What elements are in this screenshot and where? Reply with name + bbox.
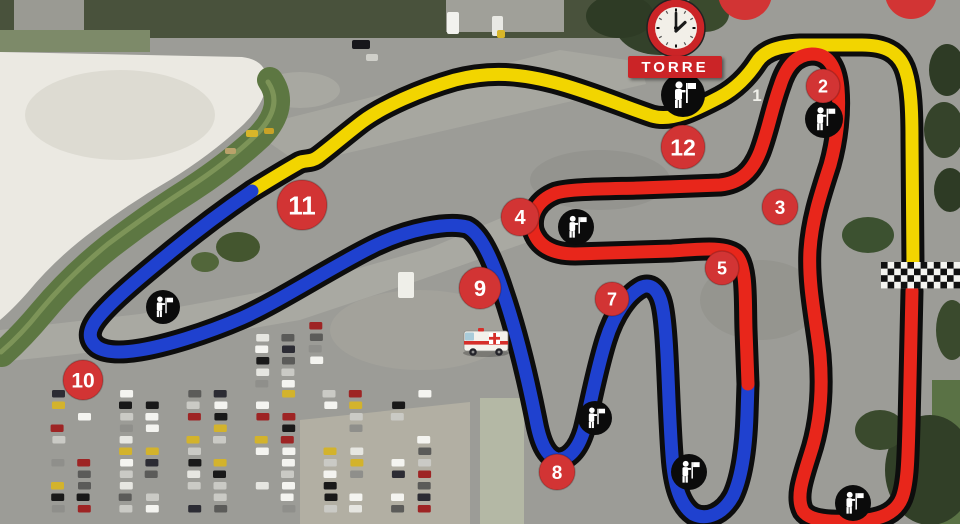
corner-marker-12: 12 (661, 125, 705, 169)
marshal-torso (817, 114, 823, 124)
marshal-circle (578, 401, 612, 435)
parked-car (187, 402, 200, 410)
marshal-head (847, 492, 853, 498)
finish-line-cell (954, 282, 960, 289)
corner-marker-label: 12 (670, 134, 696, 160)
marshal-arm (681, 90, 686, 92)
parked-car (282, 505, 295, 513)
marshal-torso (157, 302, 162, 311)
terrain-shape (842, 217, 894, 253)
parked-car (78, 482, 91, 490)
finish-line-cell (901, 269, 908, 276)
parked-car (324, 402, 337, 410)
ambulance-stripe (464, 341, 508, 345)
parked-car (77, 459, 90, 467)
marshal-flag-icon (146, 290, 180, 324)
flag-pole (165, 298, 166, 313)
parked-car (282, 346, 295, 354)
marshal-leg (820, 123, 822, 130)
parked-car (78, 505, 91, 513)
marshal-flag-icon (661, 73, 705, 117)
marshal-torso (846, 498, 852, 507)
flag (599, 409, 605, 414)
parked-car (214, 494, 227, 502)
vehicle (398, 272, 414, 298)
parked-car (418, 482, 431, 490)
corner-marker-label: 10 (71, 370, 94, 393)
finish-line-cell (888, 282, 895, 289)
parked-car (324, 505, 337, 513)
vehicle (497, 30, 505, 38)
parked-car (51, 459, 64, 467)
parked-car (349, 505, 362, 513)
parked-car (324, 482, 337, 490)
clock-center (674, 26, 678, 30)
marshal-leg (160, 311, 162, 317)
corner-marker-5: 5 (705, 251, 739, 285)
parked-car (418, 494, 431, 502)
marshal-circle (661, 73, 705, 117)
parked-car (120, 436, 133, 444)
parked-car (281, 471, 294, 479)
karting-circuit-map: 12345789101112 TORRE (0, 0, 960, 524)
parked-car (120, 482, 133, 490)
parked-car (120, 425, 133, 433)
terrain-shape (216, 232, 260, 262)
parked-car (256, 334, 269, 342)
parked-car (349, 390, 362, 398)
vehicle (246, 130, 258, 137)
parked-car (187, 471, 200, 479)
corner-marker-label: 4 (514, 207, 526, 229)
parked-car (256, 448, 269, 456)
parked-car (214, 505, 227, 513)
ambulance-hub (472, 351, 475, 354)
parked-car (145, 413, 158, 421)
parked-car (282, 425, 295, 433)
flag (857, 493, 864, 498)
marshal-circle (558, 209, 594, 245)
parked-car (146, 402, 159, 410)
parked-car (256, 357, 269, 365)
parked-car (255, 380, 268, 388)
parked-car (324, 471, 337, 479)
ambulance-windshield (465, 333, 474, 341)
parked-car (146, 505, 159, 513)
parked-car (214, 413, 227, 421)
parked-car (255, 346, 268, 354)
terrain-shape (25, 70, 215, 160)
marshal-circle (835, 485, 871, 521)
corner-marker-label: 8 (552, 463, 563, 484)
parked-car (78, 471, 91, 479)
flag (828, 109, 835, 114)
ambulance-icon (463, 328, 509, 357)
marshal-flag-icon (805, 100, 843, 138)
marshal-leg (679, 100, 682, 108)
parked-car (418, 459, 431, 467)
parked-car (188, 390, 201, 398)
vehicle (447, 12, 459, 34)
flag-pole (691, 462, 692, 478)
parked-car (392, 471, 405, 479)
parked-car (213, 471, 226, 479)
marshal-head (817, 107, 823, 113)
ambulance-cross (489, 337, 500, 340)
corner-marker-9: 9 (459, 267, 501, 309)
parked-car (350, 448, 363, 456)
parked-car (120, 471, 133, 479)
parked-car (350, 413, 363, 421)
marshal-arm (593, 414, 596, 416)
marshal-flag-icon (835, 485, 871, 521)
finish-line-cell (940, 282, 947, 289)
corner-marker-label: 7 (607, 289, 617, 309)
parked-car (187, 436, 200, 444)
finish-line-cell (934, 275, 941, 282)
flag (693, 462, 700, 467)
finish-line-cell (940, 269, 947, 276)
marshal-flag-icon (671, 454, 707, 490)
parked-car (51, 425, 64, 433)
finish-line-cell (907, 262, 914, 269)
parked-car (309, 322, 322, 330)
marshal-torso (589, 413, 594, 422)
tower-sign-label: TORRE (641, 59, 708, 76)
marshal-head (570, 216, 576, 222)
parked-car (119, 494, 132, 502)
corner-marker-10: 10 (63, 360, 103, 400)
parked-car (77, 494, 90, 502)
satellite-map-canvas: 12345789101112 (0, 0, 960, 524)
finish-line-cell (894, 262, 901, 269)
parked-car (214, 459, 227, 467)
flag (580, 217, 587, 222)
finish-line-cell (921, 262, 928, 269)
marshal-circle (805, 100, 843, 138)
marshal-leg (675, 100, 678, 108)
parked-car (120, 390, 133, 398)
parked-car (418, 505, 431, 513)
corner-marker-3: 3 (762, 189, 798, 225)
tower-sign: TORRE (628, 56, 722, 78)
marshal-arm (822, 115, 826, 117)
marshal-head (589, 407, 595, 413)
parked-car (188, 505, 201, 513)
terrain-shape (480, 398, 524, 524)
flag-pole (686, 83, 688, 103)
marshal-flag-icon (578, 401, 612, 435)
finish-line (881, 262, 960, 288)
parked-car (188, 459, 201, 467)
flag-pole (597, 409, 598, 424)
parked-car (310, 334, 323, 342)
finish-line-cell (907, 275, 914, 282)
parked-car (392, 459, 405, 467)
parked-car (119, 402, 132, 410)
clock-tower-icon (647, 0, 705, 57)
marshal-leg (592, 422, 594, 428)
marshal-leg (850, 507, 852, 514)
marshal-leg (846, 507, 848, 514)
parked-car (282, 413, 295, 421)
parked-car (214, 402, 227, 410)
corner-marker-label: 5 (717, 258, 727, 278)
parked-car (418, 448, 431, 456)
finish-line-cell (914, 269, 921, 276)
parked-car (256, 402, 269, 410)
parked-car (214, 425, 227, 433)
parked-car (350, 471, 363, 479)
finish-line-cell (954, 269, 960, 276)
finish-line-cell (881, 275, 888, 282)
flag-pole (578, 217, 579, 233)
marshal-circle (671, 454, 707, 490)
parked-car (324, 448, 337, 456)
parked-car (256, 413, 269, 421)
parked-car (282, 482, 295, 490)
parked-car (119, 448, 132, 456)
parked-car (309, 345, 322, 353)
parked-car (146, 425, 159, 433)
vehicle (352, 40, 370, 49)
parked-car (188, 448, 201, 456)
parked-car (146, 448, 159, 456)
parked-car (214, 482, 227, 490)
flag (688, 83, 696, 89)
parked-car (120, 413, 133, 421)
parked-car (120, 459, 133, 467)
parked-car (146, 494, 159, 502)
corner-marker-7: 7 (595, 282, 629, 316)
parked-car (188, 413, 201, 421)
vehicle (366, 54, 378, 61)
parked-car (310, 357, 323, 365)
corner-marker-2: 2 (806, 69, 840, 103)
marshal-head (683, 461, 689, 467)
terrain-shape (446, 0, 564, 32)
marshal-leg (682, 476, 684, 483)
parked-car (51, 482, 64, 490)
parked-car (325, 494, 338, 502)
parked-car (145, 459, 158, 467)
flag-pole (827, 109, 829, 126)
parked-car (52, 402, 65, 410)
marshal-torso (569, 222, 575, 231)
road-marking: 1 (752, 86, 761, 105)
parked-car (282, 380, 295, 388)
parked-car (282, 448, 295, 456)
marshal-arm (687, 468, 691, 470)
parked-car (214, 390, 227, 398)
marshal-arm (851, 499, 855, 501)
finish-line-cell (947, 262, 954, 269)
marshal-arm (574, 223, 578, 225)
parked-car (350, 459, 363, 467)
parked-car (52, 505, 65, 513)
parked-car (349, 494, 362, 502)
marshal-leg (157, 311, 159, 317)
finish-line-cell (888, 269, 895, 276)
marshal-arm (161, 303, 164, 305)
marshal-leg (573, 231, 575, 238)
finish-line-cell (881, 262, 888, 269)
parked-car (282, 459, 295, 467)
terrain-shape (191, 252, 219, 272)
marshal-flag-icon (558, 209, 594, 245)
parked-car (418, 390, 431, 398)
parked-car (350, 425, 363, 433)
parked-car (391, 505, 404, 513)
finish-line-cell (927, 269, 934, 276)
parked-car (255, 436, 268, 444)
parked-car (323, 390, 336, 398)
corner-marker-label: 3 (775, 198, 786, 219)
parked-car (145, 471, 158, 479)
parked-car (349, 402, 362, 410)
marshal-leg (589, 422, 591, 428)
parked-car (324, 459, 337, 467)
parked-car (51, 494, 64, 502)
finish-line-cell (921, 275, 928, 282)
marshal-torso (675, 89, 682, 100)
parked-car (281, 334, 294, 342)
flag-pole (855, 493, 856, 509)
marshal-head (157, 296, 163, 302)
parked-car (282, 390, 295, 398)
marshal-head (675, 81, 682, 88)
vehicle (225, 148, 236, 154)
parked-car (78, 413, 91, 421)
parked-car (392, 402, 405, 410)
corner-marker-4: 4 (501, 198, 539, 236)
finish-line-cell (894, 275, 901, 282)
finish-line-cell (934, 262, 941, 269)
flag (167, 298, 173, 303)
finish-line-cell (914, 282, 921, 289)
ambulance-roof-light (478, 328, 484, 332)
parked-car (417, 436, 430, 444)
marshal-leg (686, 476, 688, 483)
marshal-leg (569, 231, 571, 238)
parked-car (213, 436, 226, 444)
parked-car (52, 390, 65, 398)
marshal-leg (817, 123, 819, 130)
finish-line-cell (927, 282, 934, 289)
parked-car (52, 436, 65, 444)
parked-car (391, 413, 404, 421)
corner-marker-11: 11 (277, 180, 327, 230)
terrain-shape (0, 30, 150, 52)
vehicle (264, 128, 274, 134)
ambulance-hub (498, 351, 501, 354)
parked-car (282, 357, 295, 365)
corner-marker-label: 9 (474, 276, 486, 301)
finish-line-cell (901, 282, 908, 289)
parked-car (281, 494, 294, 502)
corner-marker-label: 2 (818, 76, 828, 96)
parked-car (281, 369, 294, 377)
parked-car (256, 482, 269, 490)
parked-car (256, 369, 269, 377)
parked-car (281, 436, 294, 444)
marshal-torso (682, 467, 688, 476)
parked-car (119, 505, 132, 513)
parked-car (418, 471, 431, 479)
parked-car (391, 494, 404, 502)
corner-marker-label: 11 (288, 190, 316, 220)
corner-marker-8: 8 (539, 454, 575, 490)
parked-car (188, 482, 201, 490)
marshal-circle (146, 290, 180, 324)
finish-line-cell (947, 275, 954, 282)
